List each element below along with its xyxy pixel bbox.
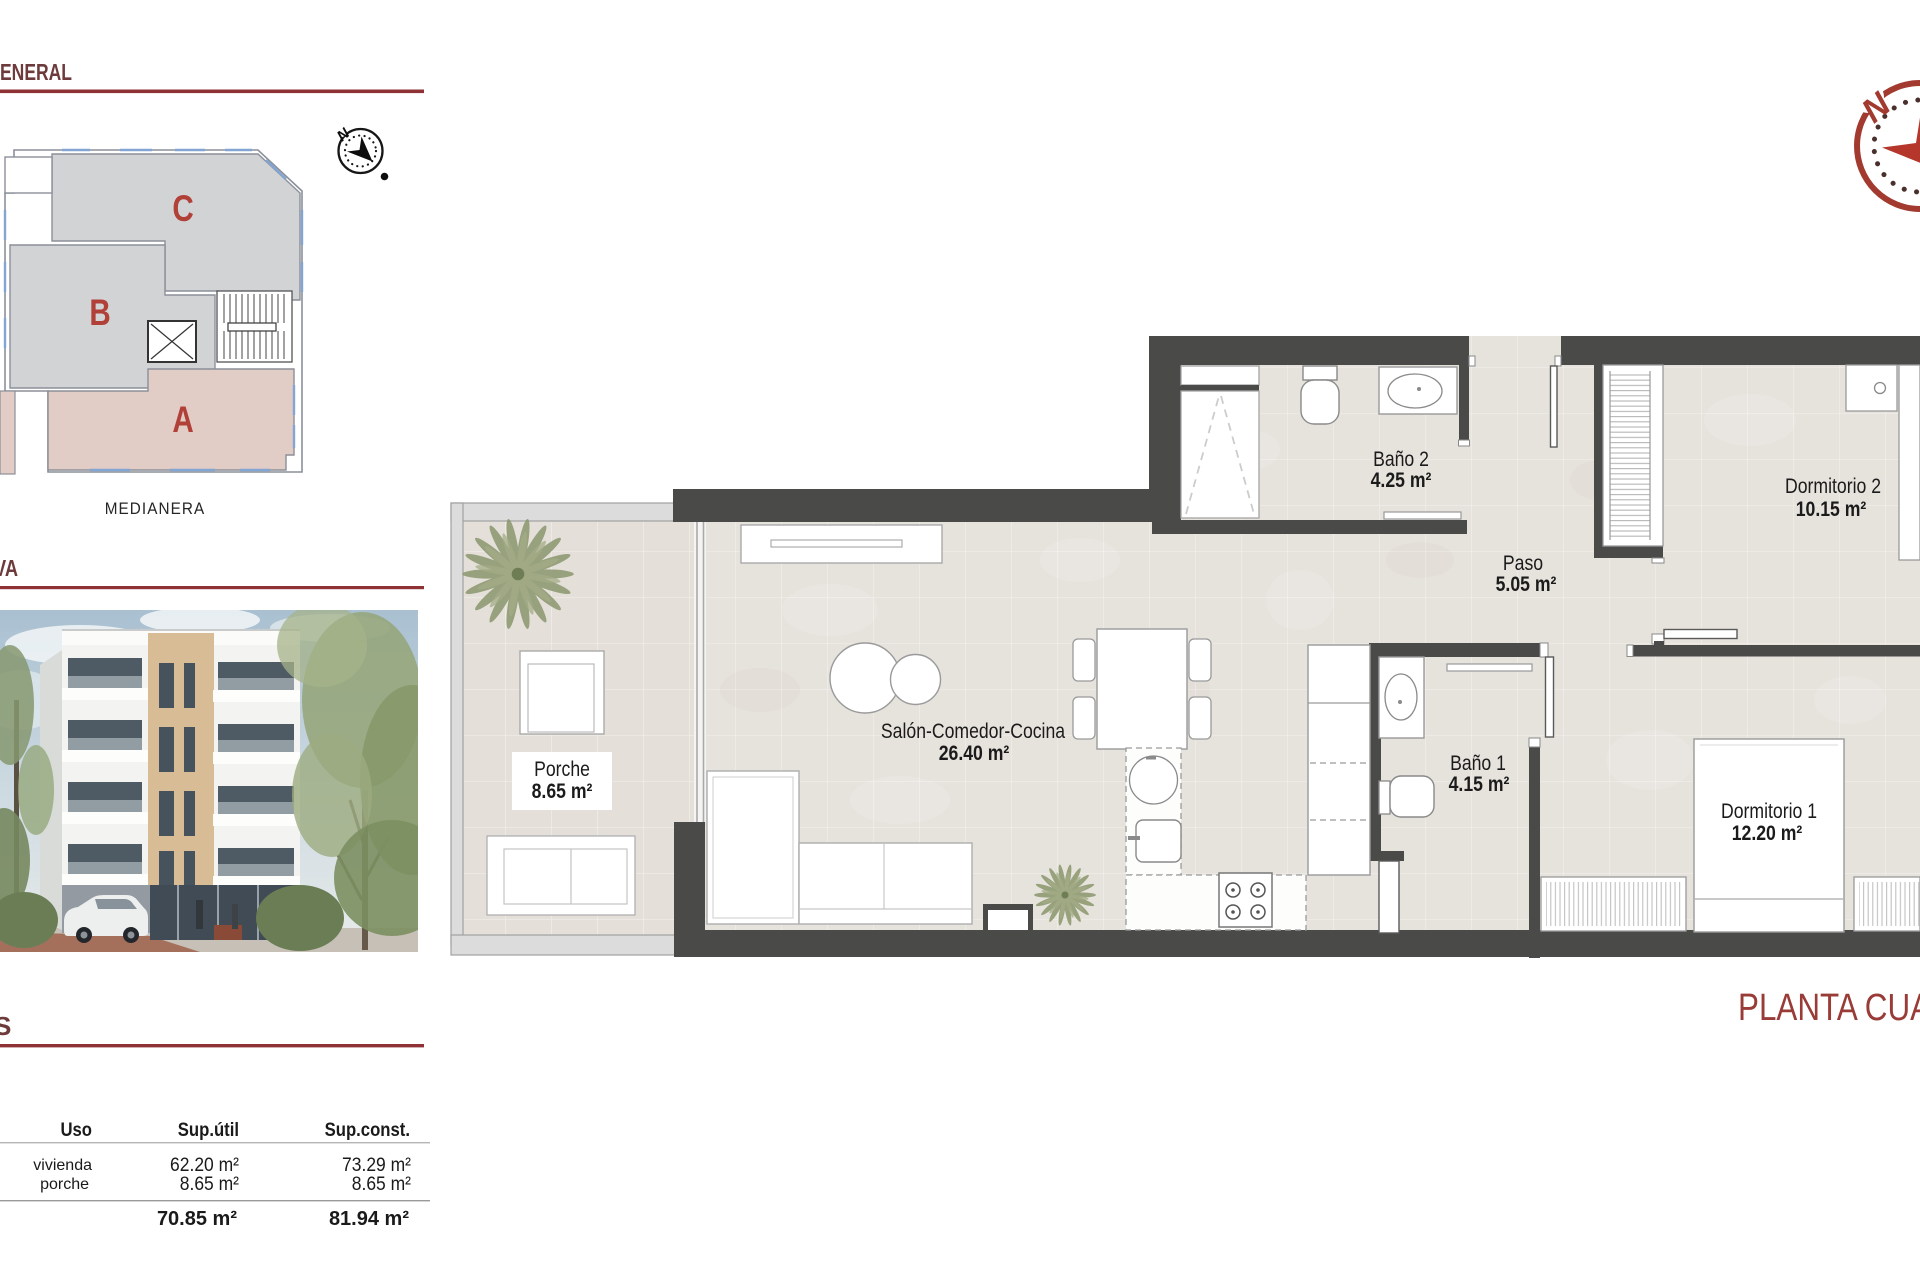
svg-text:Dormitorio 1: Dormitorio 1 bbox=[1721, 800, 1817, 824]
svg-text:4.25 m²: 4.25 m² bbox=[1371, 469, 1432, 493]
svg-text:81.94 m²: 81.94 m² bbox=[329, 1208, 409, 1230]
svg-text:B: B bbox=[89, 293, 110, 334]
svg-text:Salón-Comedor-Cocina: Salón-Comedor-Cocina bbox=[881, 720, 1065, 744]
svg-text:Porche: Porche bbox=[534, 758, 590, 782]
svg-text:Sup.útil: Sup.útil bbox=[178, 1119, 239, 1140]
svg-text:ENERAL: ENERAL bbox=[0, 59, 72, 85]
svg-text:MEDIANERA: MEDIANERA bbox=[105, 499, 206, 518]
svg-text:10.15 m²: 10.15 m² bbox=[1796, 498, 1867, 522]
svg-text:PLANTA CUARTA: PLANTA CUARTA bbox=[1738, 987, 1920, 1029]
svg-text:porche: porche bbox=[40, 1176, 89, 1193]
svg-text:4.15 m²: 4.15 m² bbox=[1449, 773, 1510, 797]
svg-text:A: A bbox=[172, 400, 193, 441]
svg-text:70.85 m²: 70.85 m² bbox=[157, 1208, 237, 1230]
svg-text:Dormitorio 2: Dormitorio 2 bbox=[1785, 475, 1881, 499]
svg-text:12.20 m²: 12.20 m² bbox=[1732, 822, 1803, 846]
svg-text:8.65 m²: 8.65 m² bbox=[180, 1172, 239, 1194]
svg-text:Sup.const.: Sup.const. bbox=[325, 1119, 410, 1140]
svg-text:8.65 m²: 8.65 m² bbox=[532, 780, 593, 804]
svg-text:VA: VA bbox=[0, 555, 18, 581]
svg-text:Uso: Uso bbox=[60, 1119, 92, 1140]
svg-text:8.65 m²: 8.65 m² bbox=[352, 1172, 411, 1194]
svg-text:5.05 m²: 5.05 m² bbox=[1496, 573, 1557, 597]
svg-text:S: S bbox=[0, 1011, 11, 1041]
svg-text:vivienda: vivienda bbox=[33, 1157, 92, 1174]
svg-text:C: C bbox=[172, 189, 193, 230]
svg-text:26.40 m²: 26.40 m² bbox=[939, 742, 1010, 766]
